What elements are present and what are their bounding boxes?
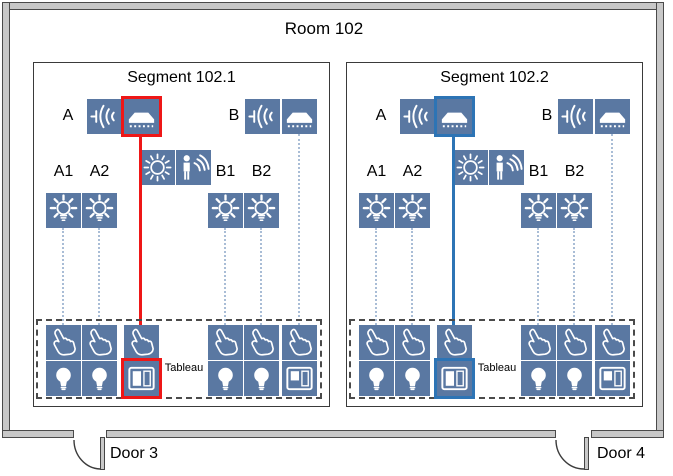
room-title: Room 102: [0, 19, 648, 39]
lamp-b2-label: B2: [244, 163, 279, 181]
pushbutton-panel-a[interactable]: [437, 325, 472, 360]
floor-plan: Door 3 Door 4 Room 102 Segment 102.1 A B…: [0, 0, 673, 476]
window-panel-icon: [124, 361, 159, 396]
person-waves-icon: [489, 150, 524, 185]
wall-bottom-right: [591, 430, 664, 438]
ceiling-panel-a-selected[interactable]: [124, 99, 159, 134]
ceiling-panel-b[interactable]: [595, 99, 630, 134]
connector-a1: [62, 228, 64, 325]
sound-waves-icon: [87, 99, 122, 134]
lamp-b2-label: B2: [557, 163, 592, 181]
connector-panel-b: [298, 134, 300, 325]
segment-102-2: Segment 102.2 A B A1 A2 B1 B2 Tableau: [346, 62, 643, 407]
shining-bulb-icon: [46, 193, 81, 228]
pointing-hand-icon: [124, 325, 159, 360]
person-waves-icon: [176, 150, 211, 185]
segment-title: Segment 102.2: [347, 69, 642, 87]
selected-link-panel-a: [139, 134, 142, 325]
presence-sensor[interactable]: [176, 150, 211, 185]
indicator-lamp-b1[interactable]: [208, 361, 243, 396]
door-3-swing-arc: [74, 440, 100, 469]
segment-title: Segment 102.1: [34, 69, 329, 87]
pointing-hand-icon: [359, 325, 394, 360]
pushbutton-a2[interactable]: [395, 325, 430, 360]
shining-bulb-icon: [395, 193, 430, 228]
ceiling-panel-icon: [437, 99, 472, 134]
ceiling-panel-icon: [124, 99, 159, 134]
wall-right: [656, 2, 664, 438]
solid-bulb-icon: [208, 361, 243, 396]
lamp-b2[interactable]: [557, 193, 592, 228]
wall-bottom-middle: [106, 430, 556, 438]
solid-bulb-icon: [46, 361, 81, 396]
pointing-hand-icon: [82, 325, 117, 360]
ceiling-panel-a-selected[interactable]: [437, 99, 472, 134]
solid-bulb-icon: [82, 361, 117, 396]
indicator-lamp-b1[interactable]: [521, 361, 556, 396]
tableau-panel-b[interactable]: [282, 361, 317, 396]
window-panel-icon: [437, 361, 472, 396]
door-4-leaf: [584, 437, 589, 470]
zone-a-label: A: [369, 107, 393, 125]
pointing-hand-icon: [595, 325, 630, 360]
pushbutton-panel-b[interactable]: [595, 325, 630, 360]
solid-bulb-icon: [557, 361, 592, 396]
lamp-a2-label: A2: [395, 163, 430, 181]
shining-bulb-icon: [208, 193, 243, 228]
solid-bulb-icon: [244, 361, 279, 396]
connector-b1: [537, 228, 539, 325]
ceiling-panel-icon: [595, 99, 630, 134]
pushbutton-panel-a[interactable]: [124, 325, 159, 360]
pushbutton-b2[interactable]: [244, 325, 279, 360]
solid-bulb-icon: [521, 361, 556, 396]
shining-bulb-icon: [359, 193, 394, 228]
door-3-leaf: [100, 437, 105, 470]
tableau-panel-b[interactable]: [595, 361, 630, 396]
ceiling-panel-icon: [282, 99, 317, 134]
indicator-lamp-b2[interactable]: [557, 361, 592, 396]
sound-waves-icon: [558, 99, 593, 134]
pointing-hand-icon: [521, 325, 556, 360]
segment-102-1: Segment 102.1 A B A1 A2 B1 B2 Tableau: [33, 62, 330, 407]
indicator-lamp-a1[interactable]: [46, 361, 81, 396]
indicator-lamp-b2[interactable]: [244, 361, 279, 396]
lamp-b1-label: B1: [208, 163, 243, 181]
indicator-lamp-a2[interactable]: [395, 361, 430, 396]
wall-left: [2, 2, 10, 438]
lamp-b1[interactable]: [521, 193, 556, 228]
sound-emitter-b[interactable]: [245, 99, 280, 134]
pointing-hand-icon: [208, 325, 243, 360]
zone-b-label: B: [535, 107, 559, 125]
pointing-hand-icon: [244, 325, 279, 360]
connector-panel-b: [611, 134, 613, 325]
window-panel-icon: [282, 361, 317, 396]
connector-b1: [224, 228, 226, 325]
pointing-hand-icon: [282, 325, 317, 360]
lamp-a1-label: A1: [46, 163, 81, 181]
pushbutton-b2[interactable]: [557, 325, 592, 360]
indicator-lamp-a1[interactable]: [359, 361, 394, 396]
light-sensor[interactable]: [453, 150, 488, 185]
connector-b2: [260, 228, 262, 325]
pushbutton-a1[interactable]: [359, 325, 394, 360]
tableau-panel-a-selected[interactable]: [124, 361, 159, 396]
shining-bulb-icon: [82, 193, 117, 228]
connector-a1: [375, 228, 377, 325]
lamp-b2[interactable]: [244, 193, 279, 228]
lamp-a1[interactable]: [359, 193, 394, 228]
shining-bulb-icon: [244, 193, 279, 228]
wall-bottom-left: [2, 430, 74, 438]
pushbutton-b1[interactable]: [521, 325, 556, 360]
zone-a-label: A: [56, 107, 80, 125]
pushbutton-a2[interactable]: [82, 325, 117, 360]
shining-bulb-icon: [557, 193, 592, 228]
lamp-a1-label: A1: [359, 163, 394, 181]
pushbutton-panel-b[interactable]: [282, 325, 317, 360]
lamp-a2-label: A2: [82, 163, 117, 181]
connector-a2: [411, 228, 413, 325]
sound-emitter-a[interactable]: [400, 99, 435, 134]
presence-sensor[interactable]: [489, 150, 524, 185]
sound-waves-icon: [400, 99, 435, 134]
door-3-label: Door 3: [110, 445, 158, 463]
sound-emitter-a[interactable]: [87, 99, 122, 134]
sound-emitter-b[interactable]: [558, 99, 593, 134]
door-4-label: Door 4: [597, 445, 645, 463]
tableau-label: Tableau: [472, 362, 522, 374]
sun-icon: [453, 150, 488, 185]
wall-top: [2, 2, 664, 10]
window-panel-icon: [595, 361, 630, 396]
sun-icon: [140, 150, 175, 185]
pushbutton-a1[interactable]: [46, 325, 81, 360]
solid-bulb-icon: [359, 361, 394, 396]
lamp-b1[interactable]: [208, 193, 243, 228]
lamp-a2[interactable]: [82, 193, 117, 228]
indicator-lamp-a2[interactable]: [82, 361, 117, 396]
door-4-swing-arc: [556, 440, 584, 469]
tableau-label: Tableau: [159, 362, 209, 374]
pointing-hand-icon: [437, 325, 472, 360]
selected-link-panel-a: [452, 134, 455, 325]
zone-b-label: B: [222, 107, 246, 125]
lamp-b1-label: B1: [521, 163, 556, 181]
shining-bulb-icon: [521, 193, 556, 228]
pointing-hand-icon: [395, 325, 430, 360]
solid-bulb-icon: [395, 361, 430, 396]
tableau-panel-a-selected[interactable]: [437, 361, 472, 396]
sound-waves-icon: [245, 99, 280, 134]
lamp-a1[interactable]: [46, 193, 81, 228]
ceiling-panel-b[interactable]: [282, 99, 317, 134]
connector-a2: [98, 228, 100, 325]
connector-b2: [573, 228, 575, 325]
pointing-hand-icon: [557, 325, 592, 360]
light-sensor[interactable]: [140, 150, 175, 185]
pushbutton-b1[interactable]: [208, 325, 243, 360]
pointing-hand-icon: [46, 325, 81, 360]
lamp-a2[interactable]: [395, 193, 430, 228]
